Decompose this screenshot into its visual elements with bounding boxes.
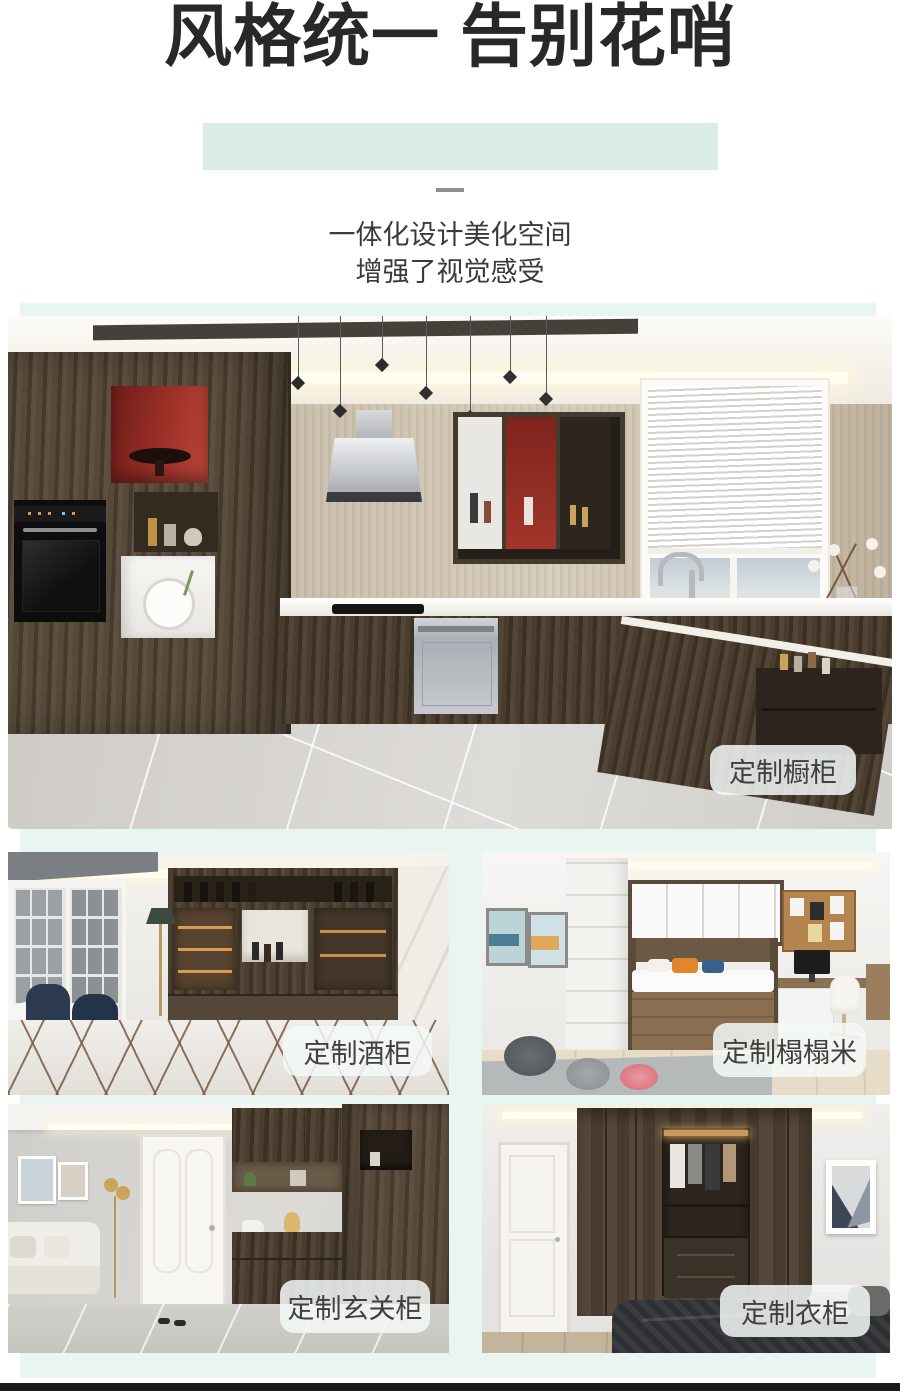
label-kitchen-cabinets: 定制橱柜 (710, 745, 856, 795)
wall-posters (486, 908, 564, 992)
page-title: 风格统一 告别花哨 (0, 0, 900, 74)
red-display-niche (111, 386, 208, 483)
right-low-cabinet (866, 964, 890, 1020)
overbed-cabinets (628, 880, 784, 946)
red-floor-pillow (620, 1064, 658, 1090)
label-wine-cabinet: 定制酒柜 (283, 1026, 432, 1076)
wardrobe-room-door (498, 1142, 570, 1338)
entry-cabinet-cubby (360, 1130, 412, 1170)
pouf-light (566, 1058, 610, 1090)
label-entryway-cabinet: 定制玄关柜 (280, 1280, 430, 1333)
cooktop (332, 604, 424, 614)
knit-pouf-dark (504, 1036, 556, 1076)
bottle-niche (134, 492, 218, 552)
dishwasher (414, 618, 498, 714)
shoes (158, 1318, 170, 1324)
range-hood (326, 438, 422, 502)
cork-pinboard (782, 890, 856, 952)
wine-unit (168, 868, 398, 1020)
entry-art-frames (18, 1156, 90, 1208)
title-highlight-bar (203, 123, 718, 170)
abstract-art (826, 1160, 876, 1234)
range-hood-duct (356, 410, 392, 438)
left-wardrobe-wall (566, 858, 628, 1054)
gold-floor-lamp (100, 1178, 130, 1304)
monitor (794, 950, 830, 974)
subtitle-line-1: 一体化设计美化空间 (0, 213, 900, 252)
subtitle-line-2: 增强了视觉感受 (0, 250, 900, 289)
entry-door (140, 1134, 226, 1312)
built-in-oven (14, 500, 106, 622)
divider-dash (436, 188, 464, 192)
white-shelf-niche (121, 556, 215, 638)
promo-page: 风格统一 告别花哨 一体化设计美化空间 增强了视觉感受 (0, 0, 900, 1391)
footer-divider-bar (0, 1383, 900, 1391)
entry-upper-cabinets (232, 1108, 342, 1162)
floor-lamp (144, 908, 178, 1020)
glass-wall-cabinet (453, 412, 625, 564)
tatami-cove-light (602, 862, 872, 869)
entry-sofa (8, 1222, 100, 1308)
entry-open-shelf (232, 1162, 342, 1192)
label-tatami: 定制榻榻米 (713, 1023, 866, 1077)
corner-open-cabinet (756, 668, 882, 754)
marble-wall (393, 866, 449, 1024)
label-wardrobe: 定制衣柜 (720, 1285, 870, 1337)
